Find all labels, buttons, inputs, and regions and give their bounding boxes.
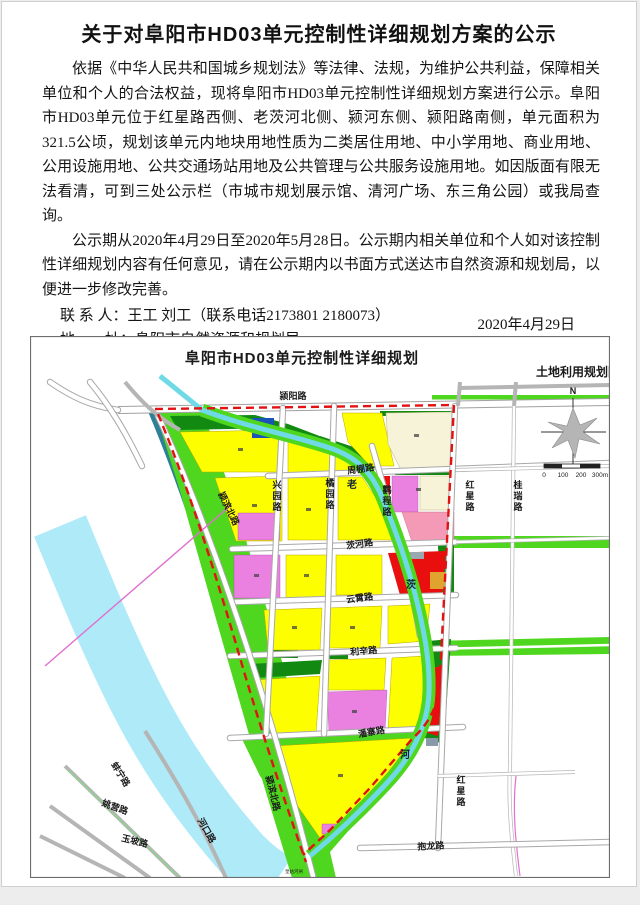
parcel-school (392, 476, 418, 512)
parcel-code-mark (306, 508, 311, 511)
road-label-guirui: 桂瑞路 (512, 479, 523, 512)
notice-paragraph-2: 公示期从2020年4月29日至2020年5月28日。公示期内相关单位和个人如对该… (42, 229, 600, 303)
landmark-label-huanggu: 皇姑河闸 (285, 868, 303, 875)
notice-paragraph-1: 依据《中华人民共和国城乡规划法》等法律、法规，为维护公共利益，保障相关单位和个人… (42, 57, 600, 229)
map-subtitle: 土地利用规划图 (536, 364, 610, 379)
road-label-hongxing-south: 红星路 (456, 774, 466, 807)
road-label-yingyang: 颍阳路 (278, 390, 307, 401)
river-label-he: 河 (400, 749, 410, 761)
parcel-code-mark (352, 710, 357, 713)
river-label-ci: 茨 (406, 578, 416, 591)
notice-date: 2020年4月29日 (477, 313, 575, 334)
notice-page: 关于对阜阳市HD03单元控制性详细规划方案的公示 依据《中华人民共和国城乡规划法… (1, 1, 637, 887)
notice-body: 依据《中华人民共和国城乡规划法》等法律、法规，为维护公共利益，保障相关单位和个人… (42, 57, 600, 302)
parcel-residential (327, 658, 386, 690)
scale-bar-segment (580, 464, 600, 468)
contact-person-value: 王工 刘工（联系电话2173801 2180073） (128, 308, 391, 324)
land-use-map: N 0 100 200 300m 颍阳路 周棚路 茨河路 云霄路 利辛路 潘寨路… (30, 336, 610, 878)
parcel-code-mark (338, 774, 343, 777)
parcel-code-mark (350, 626, 355, 629)
parcel-label-chip (426, 738, 438, 746)
parcel-residential (336, 555, 382, 595)
road-north-stub-1 (458, 382, 460, 406)
parcel-code-mark (254, 574, 259, 577)
map-canvas: N 0 100 200 300m 颍阳路 周棚路 茨河路 云霄路 利辛路 潘寨路… (30, 336, 610, 878)
contact-person-label: 联 系 人： (60, 308, 128, 324)
scale-bar-segment (544, 464, 562, 468)
road-label-baolong: 抱龙路 (417, 839, 446, 851)
parcel-code-mark (292, 626, 297, 629)
scale-label-0: 0 (542, 472, 546, 479)
parcel-reserved (386, 412, 454, 468)
scale-label-300: 300m (592, 472, 608, 479)
parcel-code-mark (252, 504, 257, 507)
road-label-guancheng: 鹳程路 (381, 484, 392, 517)
parcel-code-mark (416, 488, 421, 491)
scale-label-200: 200 (576, 472, 587, 479)
road-label-juyuan: 橘园路 (324, 477, 335, 510)
parcel-code-mark (304, 574, 309, 577)
map-title: 阜阳市HD03单元控制性详细规划 (185, 349, 419, 367)
notice-title: 关于对阜阳市HD03单元控制性详细规划方案的公示 (22, 18, 616, 47)
compass-north-label: N (570, 386, 577, 396)
road-label-hongxing-north: 红星路 (465, 479, 475, 512)
river-label-lao: 老 (346, 478, 357, 491)
scale-label-100: 100 (558, 472, 569, 479)
parcel-code-mark (414, 434, 419, 437)
parcel-code-mark (238, 448, 243, 451)
road-label-xingyuan: 兴园路 (272, 479, 282, 512)
